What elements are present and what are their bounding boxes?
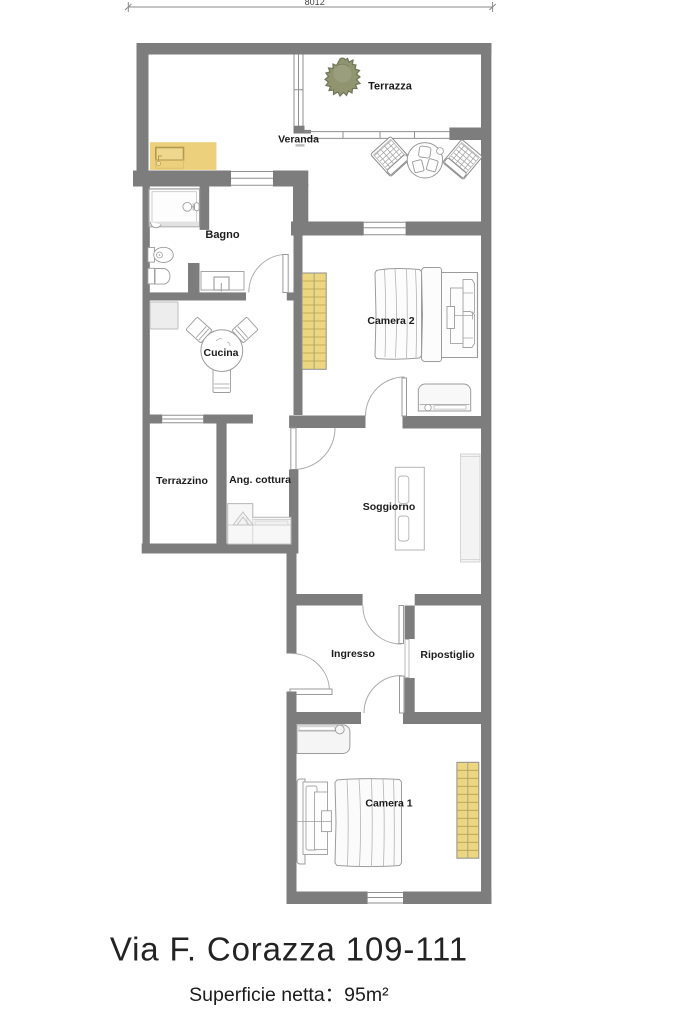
svg-text:Veranda: Veranda xyxy=(278,134,319,146)
svg-text:Soggiorno: Soggiorno xyxy=(363,501,416,513)
svg-text:Ripostiglio: Ripostiglio xyxy=(420,649,474,661)
svg-text:Terrazza: Terrazza xyxy=(368,81,413,93)
svg-text:Ingresso: Ingresso xyxy=(331,648,375,660)
svg-text:Terrazzino: Terrazzino xyxy=(156,475,208,487)
svg-text:Ang. cottura: Ang. cottura xyxy=(229,474,291,486)
svg-text:Bagno: Bagno xyxy=(205,229,240,241)
svg-text:Camera 1: Camera 1 xyxy=(365,798,412,810)
svg-text:8012: 8012 xyxy=(305,0,325,7)
svg-text:Camera 2: Camera 2 xyxy=(367,315,414,327)
svg-text:Superficie netta：95m²: Superficie netta：95m² xyxy=(189,984,389,1006)
svg-text:Via F. Corazza 109-111: Via F. Corazza 109-111 xyxy=(110,931,468,968)
svg-text:Cucina: Cucina xyxy=(203,347,238,359)
